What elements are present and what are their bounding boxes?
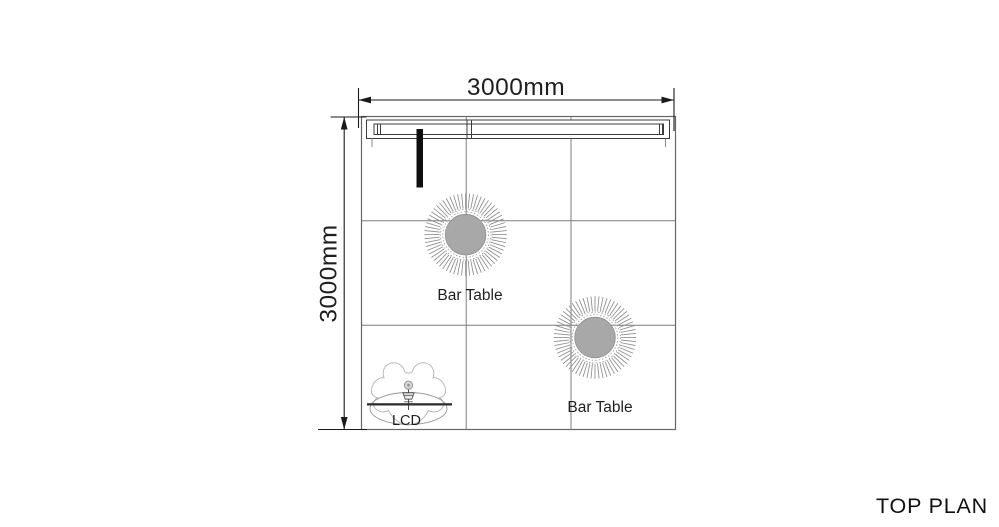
lcd-pole-dot (407, 384, 410, 387)
bar-table-label: Bar Table (567, 399, 632, 416)
lcd-screen (367, 403, 452, 405)
lcd-label: LCD (392, 413, 421, 429)
arrowhead-left-icon (359, 97, 372, 104)
bar-table (554, 296, 636, 378)
lcd-mount-bracket (403, 393, 414, 399)
bar-table-label: Bar Table (437, 287, 502, 304)
top-plan-page: 3000mm 3000mm Bar Table Bar Table (0, 0, 999, 527)
bar-table-top (445, 214, 486, 255)
dimension-width-label: 3000mm (467, 74, 565, 101)
dimension-height-label: 3000mm (316, 224, 343, 322)
spotlight-rod (417, 129, 424, 188)
back-wall (367, 120, 670, 147)
arrowhead-down-icon (341, 417, 348, 430)
arrowhead-up-icon (341, 117, 348, 130)
bar-table-top (575, 317, 616, 358)
drawing-title: TOP PLAN (876, 494, 988, 518)
arrowhead-right-icon (662, 97, 675, 104)
bar-table (424, 193, 506, 275)
top-plan-drawing: 3000mm 3000mm Bar Table Bar Table (0, 0, 999, 527)
